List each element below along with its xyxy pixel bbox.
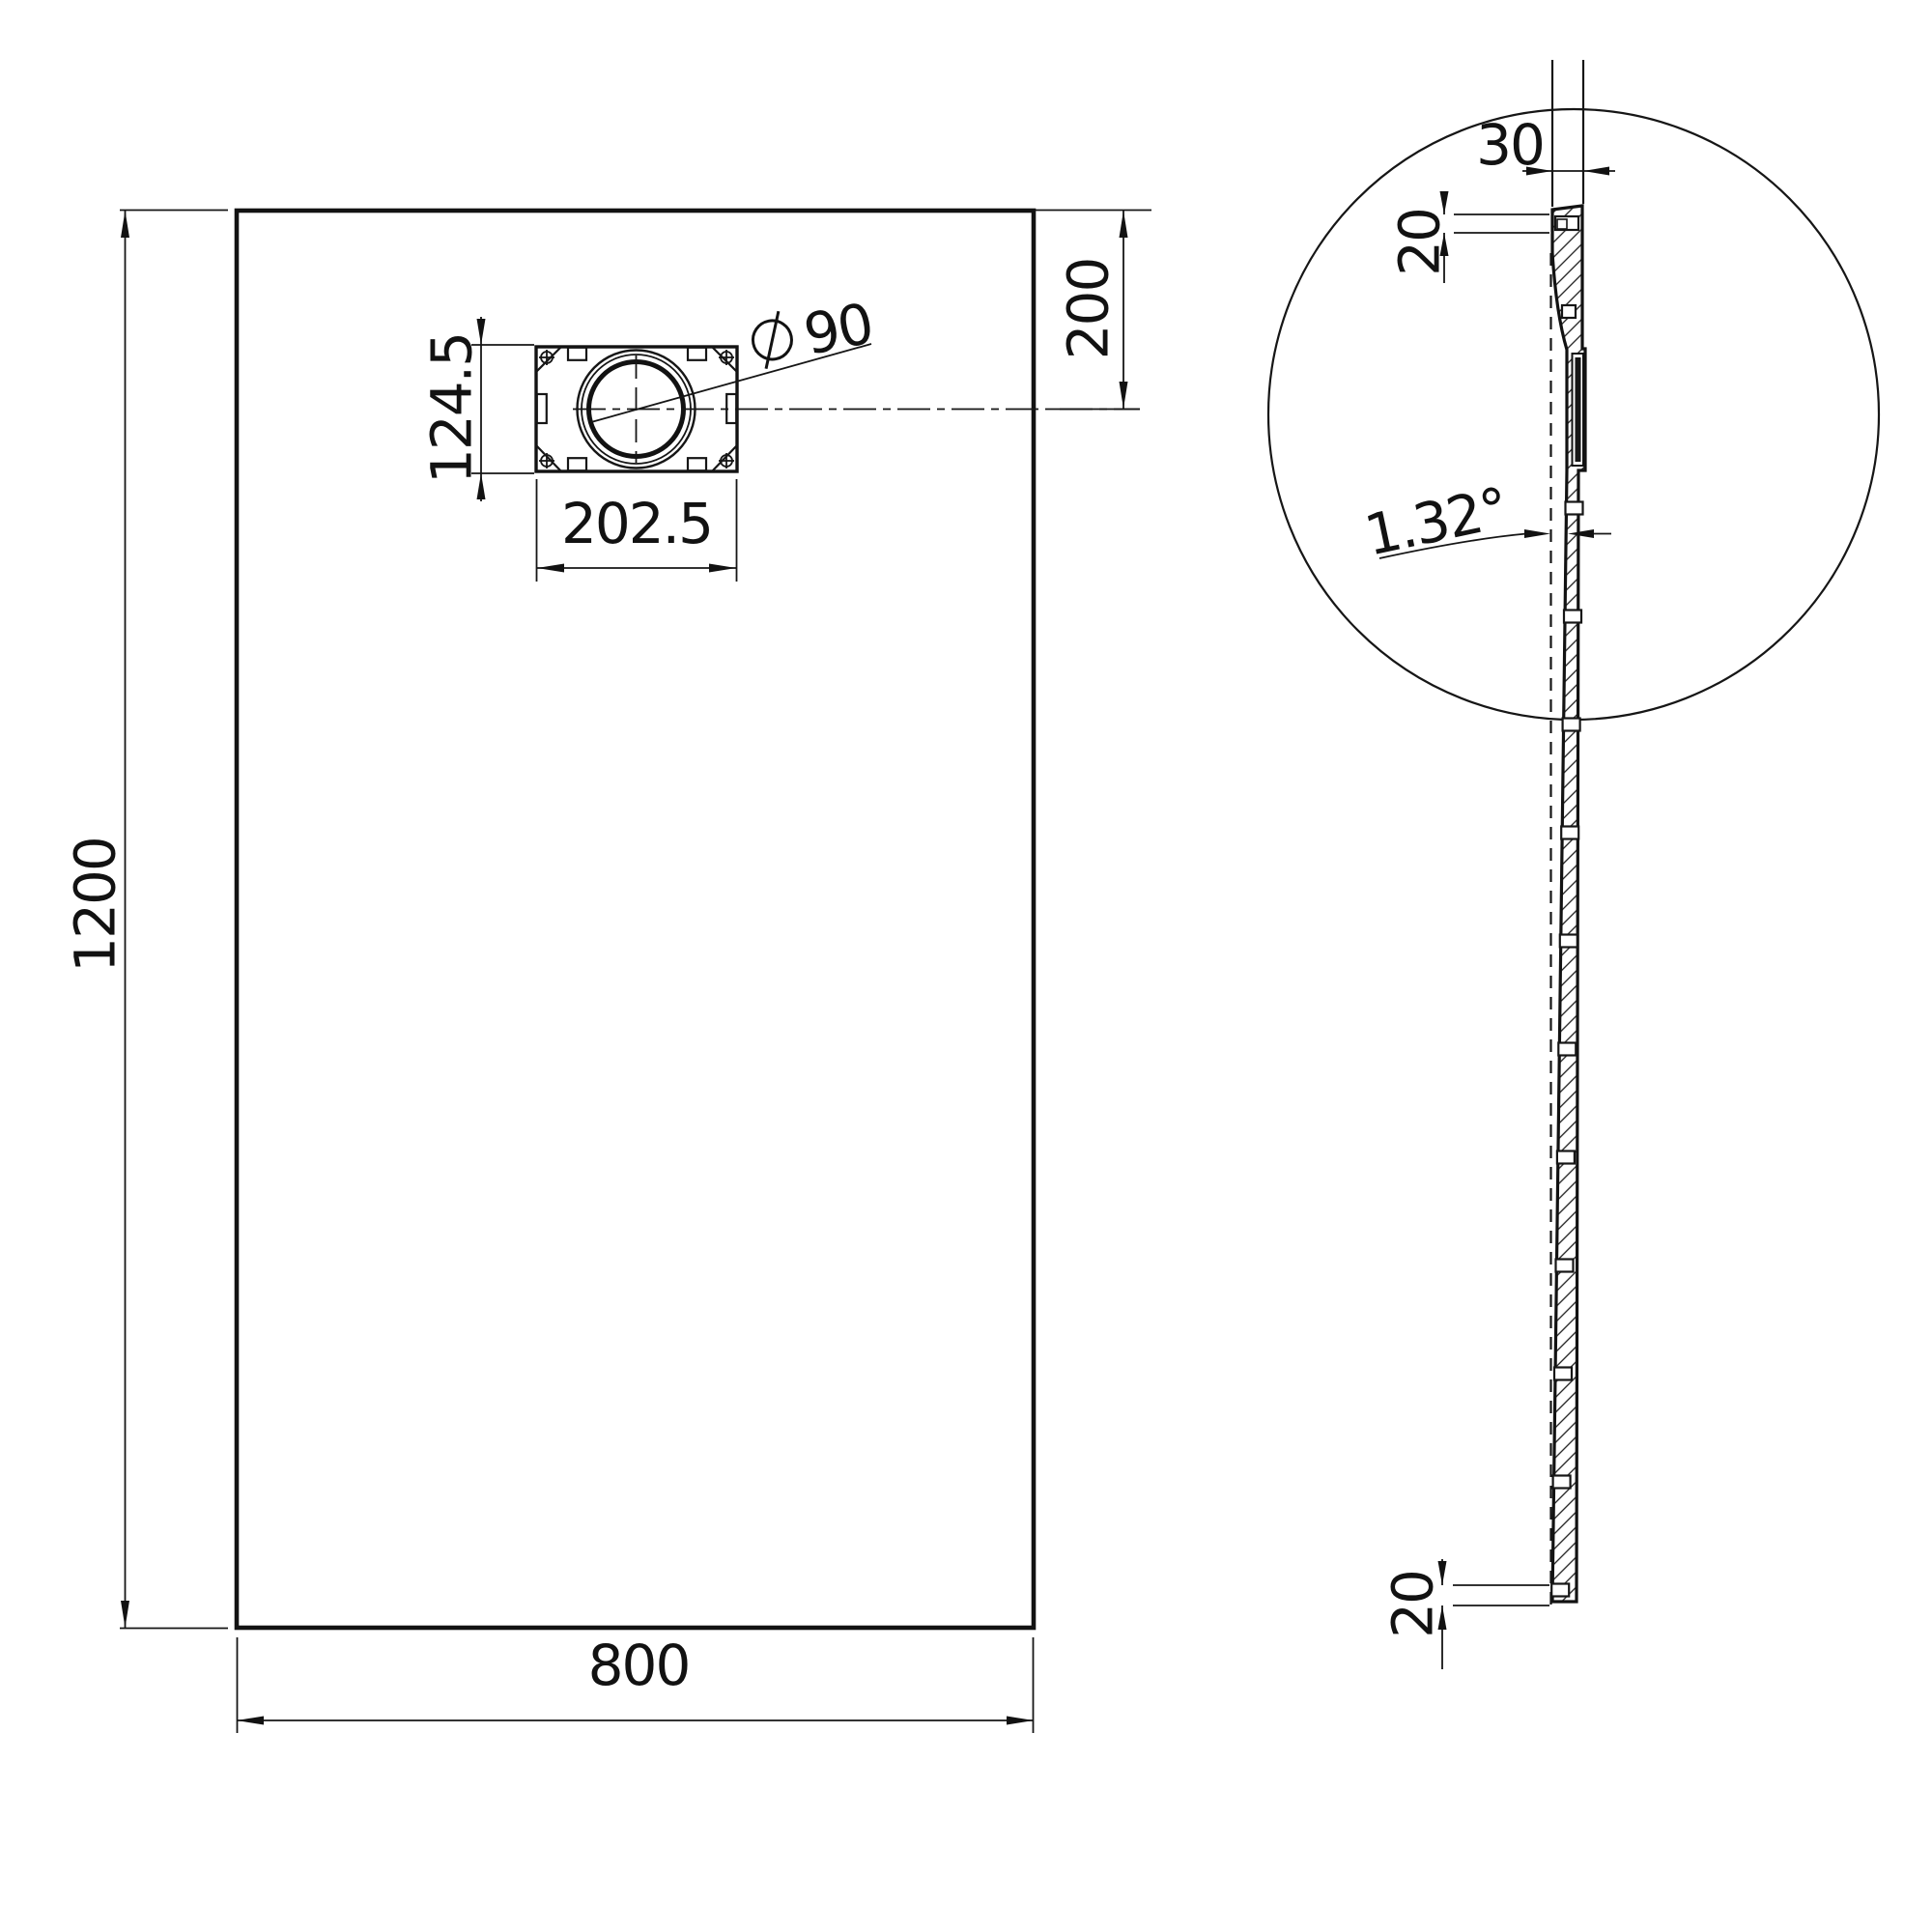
arrowhead <box>1120 382 1128 409</box>
rib-notch <box>1561 827 1578 839</box>
arrowhead <box>1524 529 1550 538</box>
dim-length: 1200 <box>62 211 228 1629</box>
dim-bottom-edge-height-label: 20 <box>1379 1571 1445 1638</box>
edge-notch <box>688 458 706 470</box>
arrowhead <box>1120 211 1128 238</box>
dim-drain-box-width-label: 202.5 <box>561 491 712 556</box>
side-view: 30 20 <box>1268 60 1879 1669</box>
dim-top-thickness: 30 <box>1476 112 1615 178</box>
dim-width-label: 800 <box>588 1633 690 1698</box>
dim-slope-angle-label: 1.32° <box>1359 474 1513 568</box>
dim-top-edge-height-label: 20 <box>1386 209 1452 276</box>
drain-side-outlet <box>1573 354 1584 466</box>
edge-notch <box>537 394 547 423</box>
edge-notch <box>568 348 586 360</box>
rib-notch <box>1564 611 1581 623</box>
arrowhead <box>121 211 129 238</box>
rib-notch <box>1554 1368 1572 1380</box>
dim-top-thickness-label: 30 <box>1476 112 1544 178</box>
edge-notch <box>688 348 706 360</box>
arrowhead <box>1007 1717 1034 1725</box>
rib-notch <box>1557 219 1567 229</box>
dim-bottom-edge-height: 20 <box>1379 1559 1549 1669</box>
dim-drain-offset: 200 <box>1034 211 1151 410</box>
dim-top-edge-height: 20 <box>1386 191 1549 283</box>
edge-notch <box>568 458 586 470</box>
rib-notch <box>1560 935 1577 948</box>
rib-notch <box>1566 502 1583 515</box>
plan-view: 1200 800 200 <box>62 211 1151 1734</box>
dim-drain-box-height-label: 124.5 <box>418 333 484 484</box>
dim-drain-offset-label: 200 <box>1055 259 1121 360</box>
technical-drawing-canvas: 1200 800 200 <box>0 0 1932 1932</box>
rib-notch <box>1557 1151 1575 1164</box>
rib-notch <box>1562 305 1576 318</box>
arrowhead <box>1583 167 1609 176</box>
dim-width: 800 <box>237 1633 1034 1733</box>
rib-notch <box>1556 1260 1574 1272</box>
dim-length-label: 1200 <box>62 838 128 973</box>
arrowhead <box>237 1717 264 1725</box>
drain-outlet-seal <box>1576 357 1581 462</box>
dim-drain-diameter-label: 90 <box>799 291 878 368</box>
drawing-page: 1200 800 200 <box>0 0 1932 1932</box>
rib-notch <box>1551 1584 1569 1597</box>
arrowhead <box>121 1601 129 1628</box>
rib-notch <box>1558 1043 1576 1056</box>
rib-notch <box>1563 719 1580 731</box>
rib-notch <box>1553 1476 1571 1489</box>
